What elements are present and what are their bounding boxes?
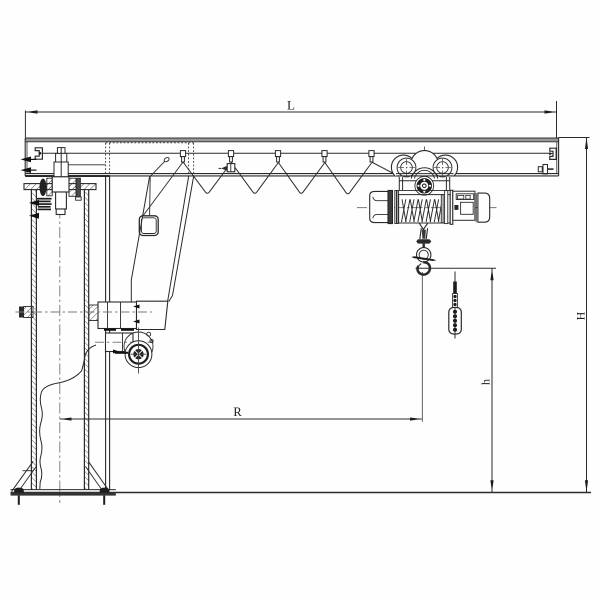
svg-text:L: L [287,98,295,113]
svg-text:R: R [233,405,242,419]
svg-text:h: h [479,379,493,385]
svg-text:H: H [573,311,587,320]
